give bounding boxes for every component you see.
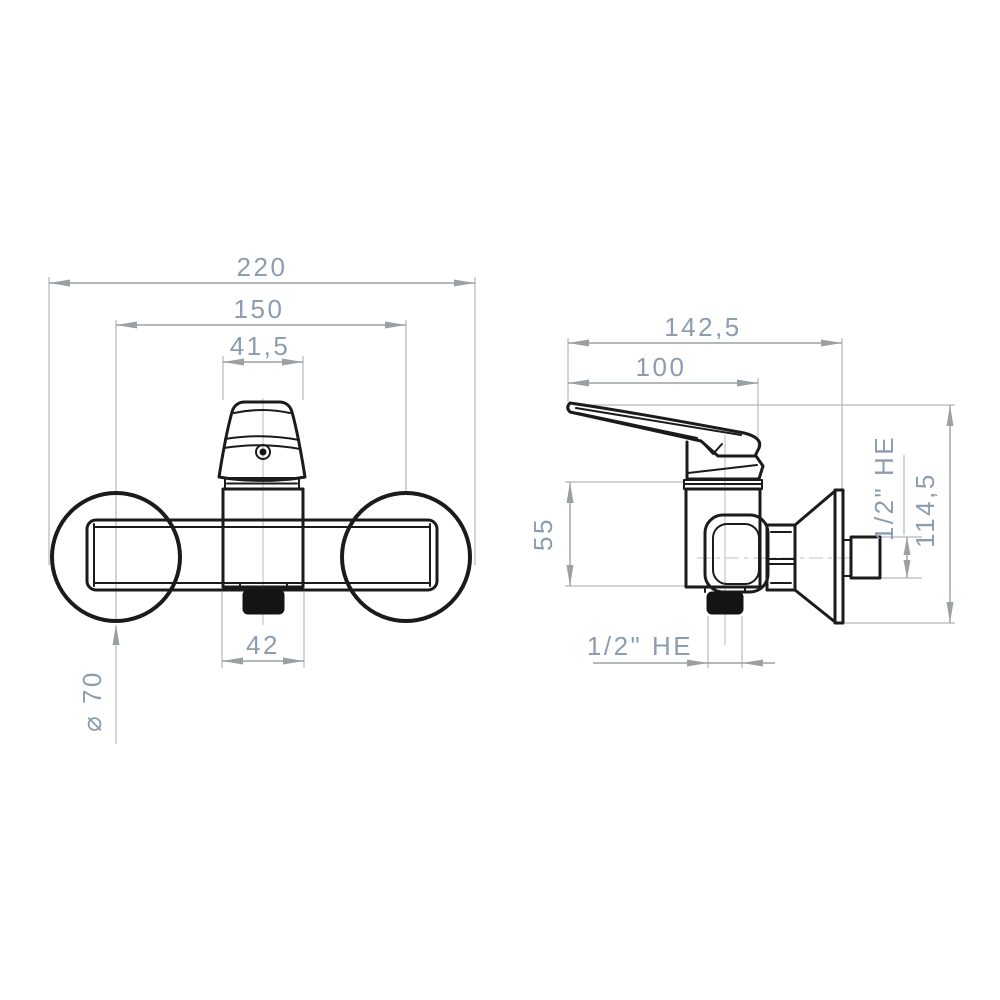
dim-outlet-thread-label: 1/2" HE	[587, 631, 693, 661]
dim-escutcheon-diameter-label: ⌀ 70	[77, 670, 107, 732]
dim-outlet-width-label: 42	[246, 630, 280, 660]
front-outlet-thread	[243, 590, 284, 614]
dim-overall-depth-label: 142,5	[664, 312, 742, 342]
dim-inlet-thread-label: 1/2" HE	[869, 435, 899, 541]
dim-overall-width-label: 220	[237, 252, 288, 282]
shower-mixer-technical-drawing: 220 150 41,5 42 ⌀ 70	[0, 0, 1000, 1000]
dim-overall-height-label: 114,5	[910, 472, 940, 548]
dim-handle-depth-label: 100	[636, 352, 687, 382]
dim-body-height-label: 55	[528, 517, 558, 551]
dim-body-width-label: 41,5	[230, 331, 291, 361]
drawing-background	[0, 0, 1000, 1000]
drawing-page: 220 150 41,5 42 ⌀ 70	[0, 0, 1000, 1000]
dim-connection-centers-label: 150	[234, 294, 285, 324]
side-outlet-thread	[707, 592, 743, 614]
